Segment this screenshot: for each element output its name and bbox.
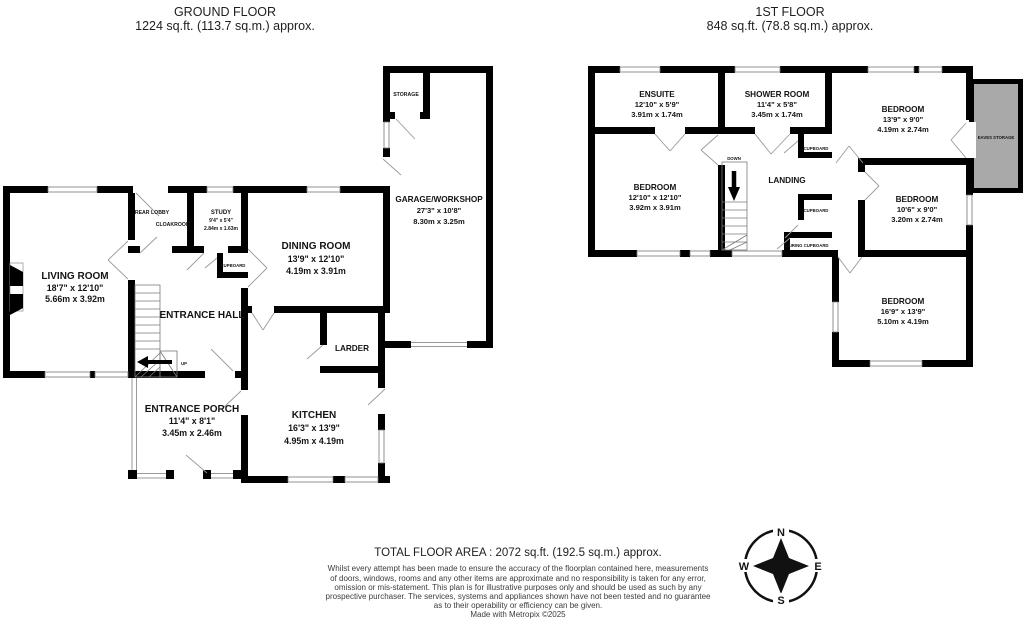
bedroom-4-dims-ft: 16'9" x 13'9" — [881, 307, 926, 316]
compass-south: S — [777, 595, 784, 607]
ensuite-label: ENSUITE — [639, 90, 675, 99]
eaves-storage: EAVES STORAGE — [951, 79, 1023, 193]
rear-lobby-label: REAR LOBBY — [135, 210, 170, 216]
garage-dims-ft: 27'3" x 10'8" — [417, 206, 462, 215]
stairs-up-label: UP — [181, 361, 187, 366]
dining-room-dims-ft: 13'9" x 12'10" — [288, 254, 345, 264]
entrance-porch-dims-m: 3.45m x 2.46m — [162, 428, 222, 438]
disclaimer-line-2: of doors, windows, rooms and any other i… — [330, 574, 706, 583]
dining-room-dims-m: 4.19m x 3.91m — [286, 266, 346, 276]
bedroom-1-dims-m: 4.19m x 2.74m — [877, 125, 929, 134]
shower-room-dims-m: 3.45m x 1.74m — [751, 110, 803, 119]
first-floor-subtitle: 848 sq.ft. (78.8 sq.m.) approx. — [707, 19, 874, 33]
credit-line: Made with Metropix ©2025 — [470, 610, 566, 619]
ground-floor-doors — [108, 119, 415, 408]
ground-floor-labels: LIVING ROOM 18'7" x 12'10" 5.66m x 3.92m… — [41, 92, 483, 446]
shower-room-dims-ft: 11'4" x 5'8" — [757, 100, 797, 109]
cupboard-2-label: CUPBOARD — [804, 208, 829, 213]
cloakroom-label: CLOAKROOM — [156, 222, 191, 228]
compass-east: E — [814, 561, 821, 573]
ensuite-dims-m: 3.91m x 1.74m — [631, 110, 683, 119]
study-dims-ft: 9'4" x 5'4" — [209, 218, 233, 224]
study-dims-m: 2.84m x 1.63m — [204, 226, 238, 232]
ensuite-dims-ft: 12'10" x 5'9" — [635, 100, 680, 109]
floorplan-page: GROUND FLOOR 1224 sq.ft. (113.7 sq.m.) a… — [0, 0, 1024, 624]
bedroom-2-dims-m: 3.92m x 3.91m — [629, 203, 681, 212]
footer: TOTAL FLOOR AREA : 2072 sq.ft. (192.5 sq… — [326, 547, 712, 619]
garage-door-opening — [411, 343, 467, 347]
study-label: STUDY — [211, 210, 231, 216]
first-floor-labels: ENSUITE 12'10" x 5'9" 3.91m x 1.74m SHOW… — [628, 90, 943, 326]
cupboard-label: CUPBOARD — [221, 263, 246, 268]
disclaimer-line-1: Whilst every attempt has been made to en… — [328, 564, 709, 573]
bedroom-2-dims-ft: 12'10" x 12'10" — [628, 193, 681, 202]
bedroom-4-label: BEDROOM — [882, 297, 925, 306]
landing-label: LANDING — [768, 176, 805, 185]
first-floor-stairs: DOWN — [722, 156, 747, 250]
airing-cupboard-label: AIRING CUPBOARD — [787, 243, 828, 248]
entrance-hall-label: ENTRANCE HALL — [160, 310, 245, 321]
bedroom-3-dims-m: 3.20m x 2.74m — [891, 215, 943, 224]
floorplan-svg: GROUND FLOOR 1224 sq.ft. (113.7 sq.m.) a… — [0, 0, 1024, 624]
cupboard-1-label: CUPBOARD — [804, 146, 829, 151]
entrance-porch-dims-ft: 11'4" x 8'1" — [169, 416, 215, 426]
stairs-down-label: DOWN — [727, 156, 741, 161]
first-floor-title: 1ST FLOOR — [755, 5, 824, 19]
bedroom-1-label: BEDROOM — [882, 105, 925, 114]
fireplace — [10, 263, 23, 315]
ground-floor-title: GROUND FLOOR — [174, 5, 276, 19]
kitchen-dims-m: 4.95m x 4.19m — [284, 436, 344, 446]
disclaimer-line-4: prospective purchaser. The services, sys… — [326, 592, 712, 601]
living-room-label: LIVING ROOM — [41, 271, 108, 282]
bedroom-2-label: BEDROOM — [634, 183, 677, 192]
compass-star — [753, 538, 809, 594]
living-room-dims-ft: 18'7" x 12'10" — [47, 283, 104, 293]
entrance-porch-label: ENTRANCE PORCH — [145, 404, 239, 415]
dining-room-label: DINING ROOM — [282, 241, 351, 252]
bedroom-3-dims-ft: 10'6" x 9'0" — [897, 205, 938, 214]
bedroom-4-dims-m: 5.10m x 4.19m — [877, 317, 929, 326]
living-room-dims-m: 5.66m x 3.92m — [45, 294, 105, 304]
disclaimer-line-5: as to their operability or efficiency ca… — [434, 601, 602, 610]
ground-floor-subtitle: 1224 sq.ft. (113.7 sq.m.) approx. — [135, 19, 315, 33]
shower-room-label: SHOWER ROOM — [745, 90, 810, 99]
larder-label: LARDER — [335, 344, 369, 353]
kitchen-label: KITCHEN — [292, 410, 336, 421]
disclaimer-line-3: omission or mis-statement. This plan is … — [334, 583, 701, 592]
kitchen-dims-ft: 16'3" x 13'9" — [288, 423, 340, 433]
garage-label: GARAGE/WORKSHOP — [395, 195, 483, 204]
bedroom-1-dims-ft: 13'9" x 9'0" — [883, 115, 924, 124]
eaves-storage-label: EAVES STORAGE — [978, 135, 1015, 140]
compass: N E S W — [736, 524, 826, 607]
bedroom-3-label: BEDROOM — [896, 195, 939, 204]
garage-dims-m: 8.30m x 3.25m — [413, 217, 465, 226]
total-floor-area: TOTAL FLOOR AREA : 2072 sq.ft. (192.5 sq… — [374, 547, 661, 559]
compass-west: W — [739, 561, 750, 573]
compass-north: N — [777, 527, 785, 539]
storage-label: STORAGE — [393, 92, 419, 98]
ground-floor-stairs: UP — [135, 285, 187, 377]
